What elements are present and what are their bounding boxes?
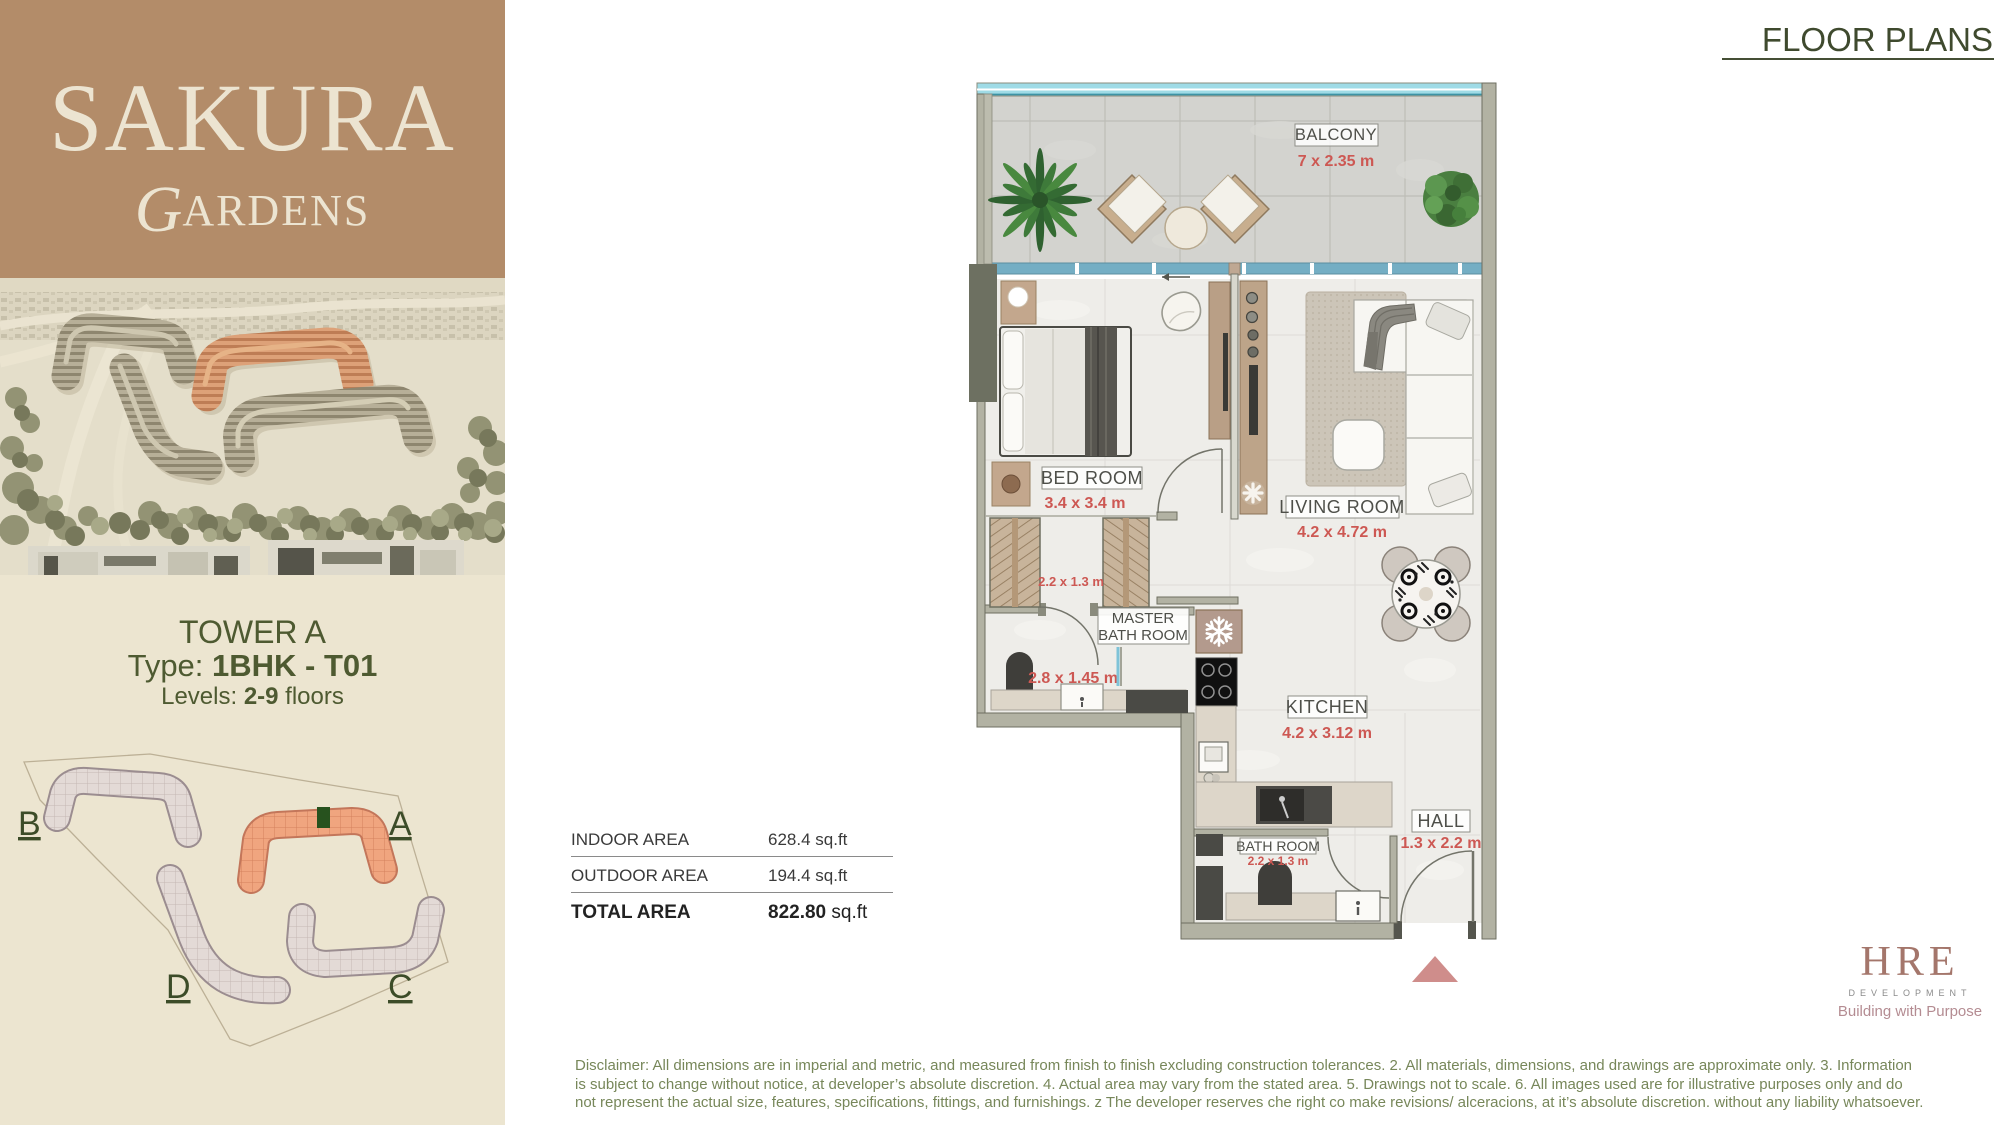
svg-text:4.2 x 4.72 m: 4.2 x 4.72 m	[1297, 524, 1387, 541]
svg-text:1.3 x 2.2 m: 1.3 x 2.2 m	[1401, 835, 1482, 852]
svg-text:HALL: HALL	[1417, 811, 1464, 831]
svg-text:2.8 x 1.45 m: 2.8 x 1.45 m	[1028, 670, 1118, 687]
svg-text:BED ROOM: BED ROOM	[1041, 468, 1143, 488]
svg-text:BATH ROOM: BATH ROOM	[1236, 838, 1320, 854]
svg-text:4.2 x 3.12 m: 4.2 x 3.12 m	[1282, 725, 1372, 742]
svg-text:2.2 x 1.3 m: 2.2 x 1.3 m	[1038, 574, 1104, 589]
svg-text:KITCHEN: KITCHEN	[1286, 697, 1369, 717]
svg-text:MASTER: MASTER	[1112, 610, 1175, 627]
svg-text:3.4 x 3.4 m: 3.4 x 3.4 m	[1045, 495, 1126, 512]
svg-text:D: D	[166, 968, 191, 1006]
svg-text:7 x 2.35 m: 7 x 2.35 m	[1298, 153, 1375, 170]
svg-text:BATH ROOM: BATH ROOM	[1098, 627, 1188, 644]
svg-text:LIVING ROOM: LIVING ROOM	[1279, 497, 1405, 517]
svg-text:A: A	[389, 805, 412, 843]
svg-text:BALCONY: BALCONY	[1295, 126, 1377, 144]
svg-text:B: B	[18, 805, 41, 843]
svg-text:2.2 x 1.3 m: 2.2 x 1.3 m	[1248, 854, 1309, 868]
svg-text:C: C	[388, 968, 413, 1006]
